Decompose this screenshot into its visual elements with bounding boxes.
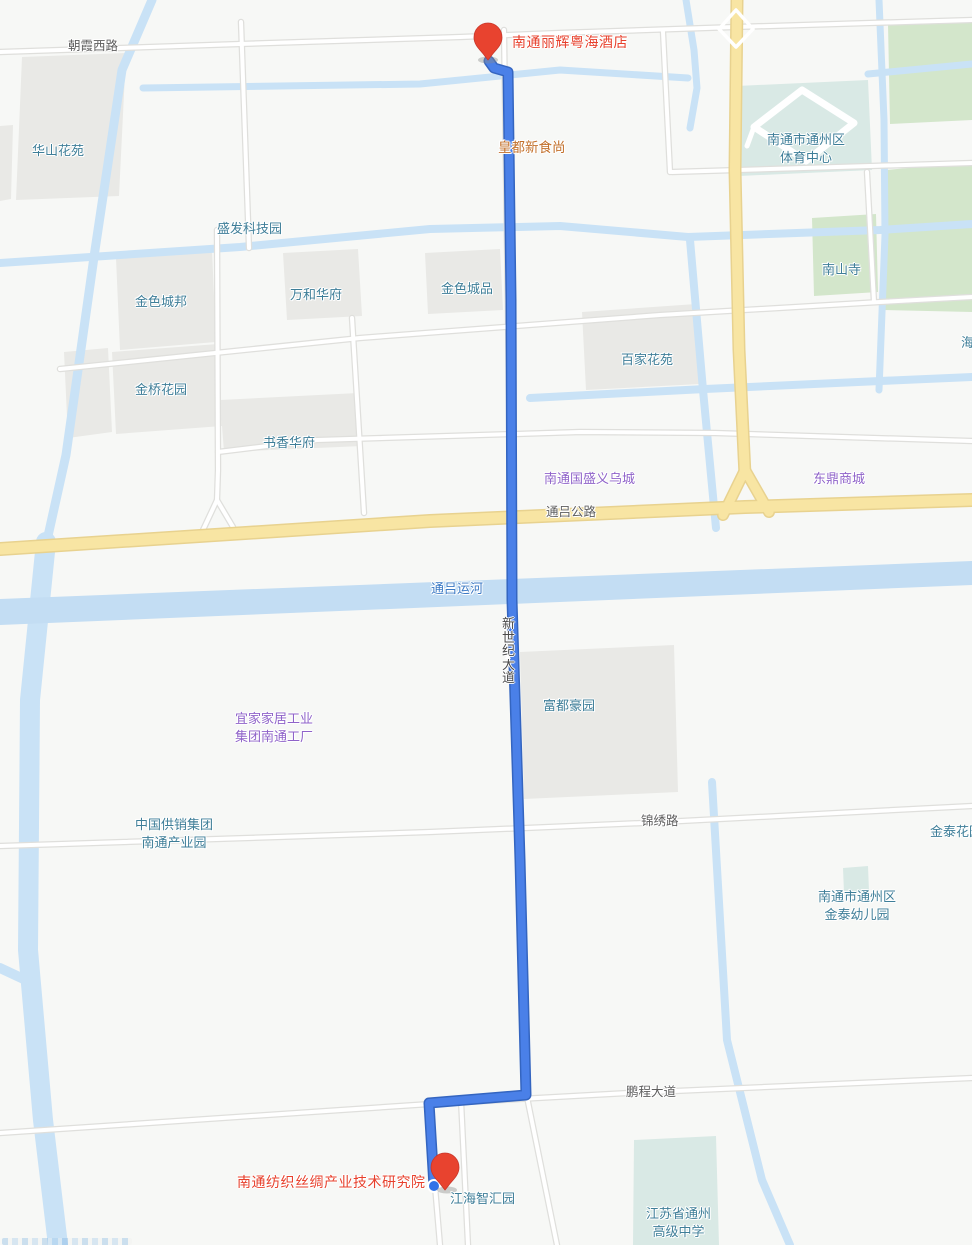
- road-label-pengcheng: 鹏程大道: [626, 1085, 676, 1100]
- map-layer: [0, 0, 972, 1245]
- route-direction-arrow-icon: ▲: [503, 652, 513, 662]
- road-label-chaoxia: 朝霞西路: [68, 39, 118, 54]
- poi-label-jinsechengpin[interactable]: 金色城品: [441, 281, 493, 296]
- start-pin-label[interactable]: 南通丽辉粤海酒店: [512, 35, 628, 50]
- poi-label-shuxiang[interactable]: 书香华府: [263, 435, 315, 450]
- water-label-tonglv-canal: 通吕运河: [431, 581, 483, 596]
- road-label-tonglv-highway: 通吕公路: [546, 505, 596, 520]
- poi-label-nanshansi[interactable]: 南山寺: [822, 262, 861, 277]
- destination-pin-label[interactable]: 南通纺织丝绸产业技术研究院: [237, 1175, 426, 1190]
- map-background: [0, 0, 972, 1245]
- poi-label-sports-center[interactable]: 南通市通州区 体育中心: [756, 131, 856, 167]
- map-canvas[interactable]: 南通丽辉粤海酒店 南通纺织丝绸产业技术研究院 朝霞西路 通吕公路 锦绣路 鹏程大…: [0, 0, 972, 1245]
- poi-label-huangdu[interactable]: 皇都新食尚: [498, 140, 566, 155]
- poi-label-jinqiao[interactable]: 金桥花园: [135, 382, 187, 397]
- road-label-jinxiu: 锦绣路: [641, 814, 679, 829]
- poi-label-jianghai[interactable]: 江海智汇园: [450, 1191, 515, 1206]
- poi-label-jintai-kindergarten[interactable]: 南通市通州区 金泰幼儿园: [811, 888, 903, 924]
- map-watermark: [2, 1238, 132, 1245]
- poi-label-baijia[interactable]: 百家花苑: [621, 352, 673, 367]
- destination-pin[interactable]: [430, 1152, 460, 1192]
- poi-label-partial-right[interactable]: 海: [961, 335, 972, 350]
- poi-label-wanhe[interactable]: 万和华府: [290, 287, 342, 302]
- poi-label-dongding[interactable]: 东鼎商城: [813, 471, 865, 486]
- poi-label-guosheng[interactable]: 南通国盛义乌城: [544, 471, 635, 486]
- poi-label-shengfa[interactable]: 盛发科技园: [217, 221, 282, 236]
- poi-label-gongxiao[interactable]: 中国供销集团 南通产业园: [130, 816, 218, 852]
- poi-label-jintai-garden[interactable]: 金泰花园: [930, 824, 972, 839]
- poi-label-fudu[interactable]: 富都豪园: [543, 698, 595, 713]
- start-pin[interactable]: [473, 22, 503, 62]
- poi-label-tongzhou-school[interactable]: 江苏省通州 高级中学: [636, 1205, 721, 1241]
- poi-label-huashan[interactable]: 华山花苑: [32, 143, 84, 158]
- poi-label-jinsechengbang[interactable]: 金色城邦: [135, 294, 187, 309]
- poi-label-ikea[interactable]: 宜家家居工业 集团南通工厂: [229, 710, 319, 746]
